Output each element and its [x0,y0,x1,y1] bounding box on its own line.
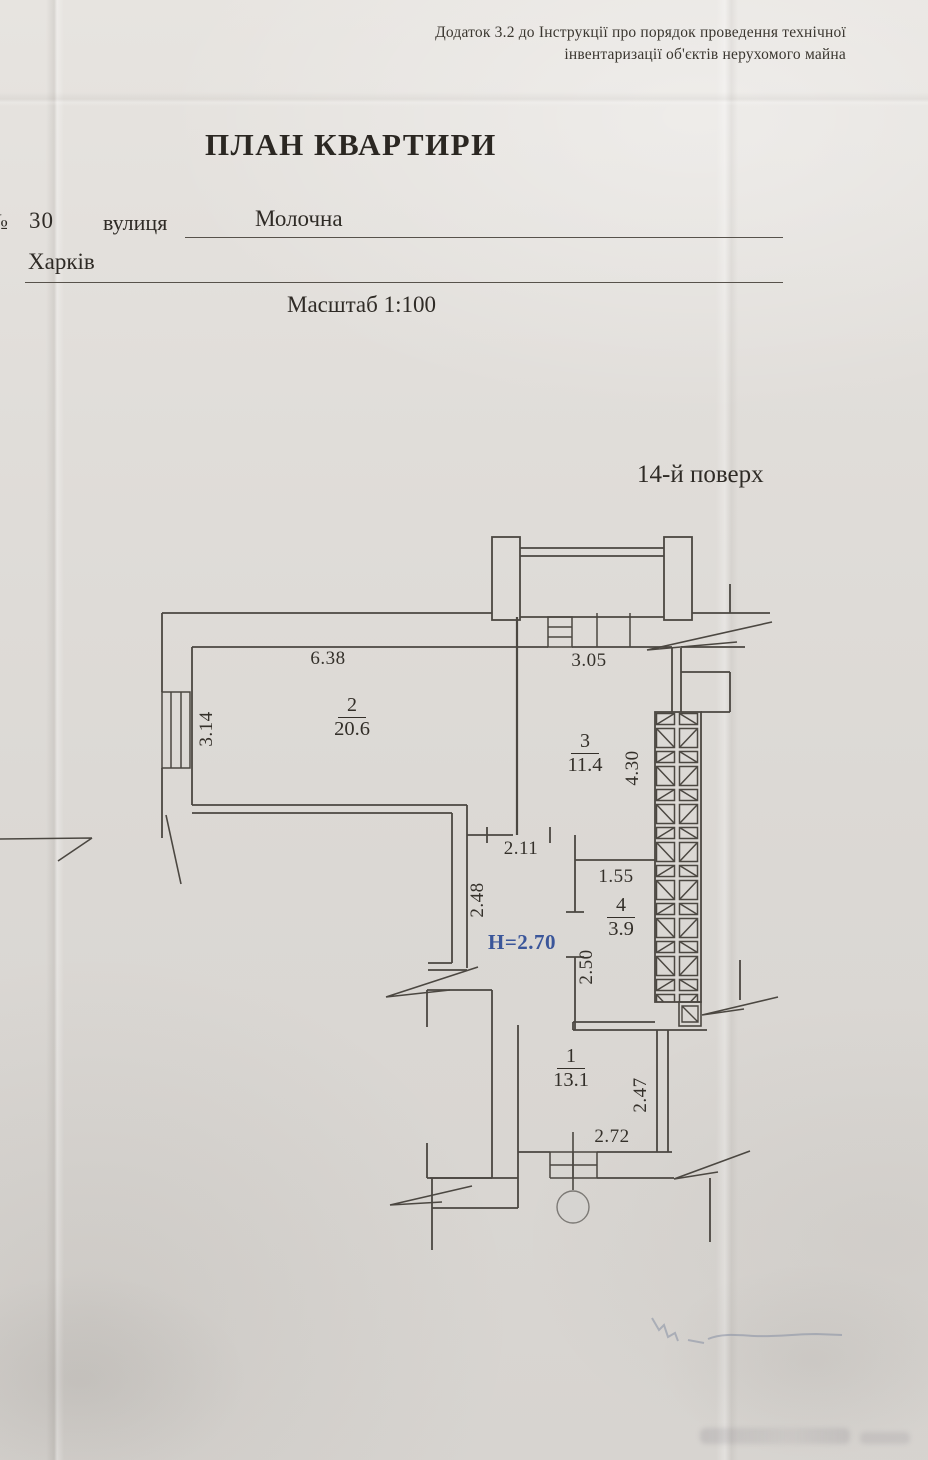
break-arrow-bottom-right [674,1151,750,1179]
pen-squiggle [652,1318,842,1343]
break-arrow-bottom-left [390,1186,472,1205]
dim-shaft-side-height: 4.30 [622,738,644,798]
vent-shaft [655,712,701,1026]
room2-number: 2 [338,694,366,718]
room4-area: 3.9 [586,918,656,941]
balcony-window-symbol [548,617,572,647]
balcony-pier-left [492,537,520,620]
vent-shaft-step-cell [682,1006,698,1022]
room-label-2: 2 20.6 [317,694,387,741]
room2-bottom-wall [192,805,467,970]
balcony-railing [520,548,664,556]
left-window-symbol [162,692,190,768]
room-label-4: 4 3.9 [586,894,656,941]
duct-wall [672,648,730,712]
room1-area: 13.1 [536,1069,606,1092]
dim-room1-width: 2.72 [577,1126,647,1148]
floor-plan-drawing [0,0,928,1460]
room3-number: 3 [571,730,599,754]
dim-room2-window-width: 3.14 [196,699,218,759]
room1-right-wall [657,1030,668,1152]
closet-outline [427,990,492,1178]
room-label-1: 1 13.1 [536,1045,606,1092]
balcony-door-jambs [597,613,630,647]
vent-shaft-body [655,712,701,1002]
room1-number: 1 [557,1045,585,1069]
break-arrow-left [0,838,92,861]
scanned-floor-plan-page: Додаток 3.2 до Інструкції про порядок пр… [0,0,928,1460]
dim-corridor-width: 2.11 [486,838,556,860]
dim-room3-top-width: 3.05 [554,650,624,672]
dim-room1-depth: 2.47 [630,1065,652,1125]
room3-area: 11.4 [550,754,620,777]
entrance-column-circle [557,1191,589,1223]
balcony-door-leaf [166,815,181,884]
dim-corridor-depth: 2.48 [467,870,489,930]
break-arrow-corridor [386,967,478,997]
dim-room2-top-width: 6.38 [293,648,363,670]
room-label-3: 3 11.4 [550,730,620,777]
dim-room4-width: 1.55 [581,866,651,888]
balcony-pier-right [664,537,692,620]
room2-area: 20.6 [317,718,387,741]
break-arrow-top-right [647,622,772,650]
room4-number: 4 [607,894,635,918]
balcony [492,537,692,647]
ceiling-height-note: H=2.70 [488,930,588,955]
